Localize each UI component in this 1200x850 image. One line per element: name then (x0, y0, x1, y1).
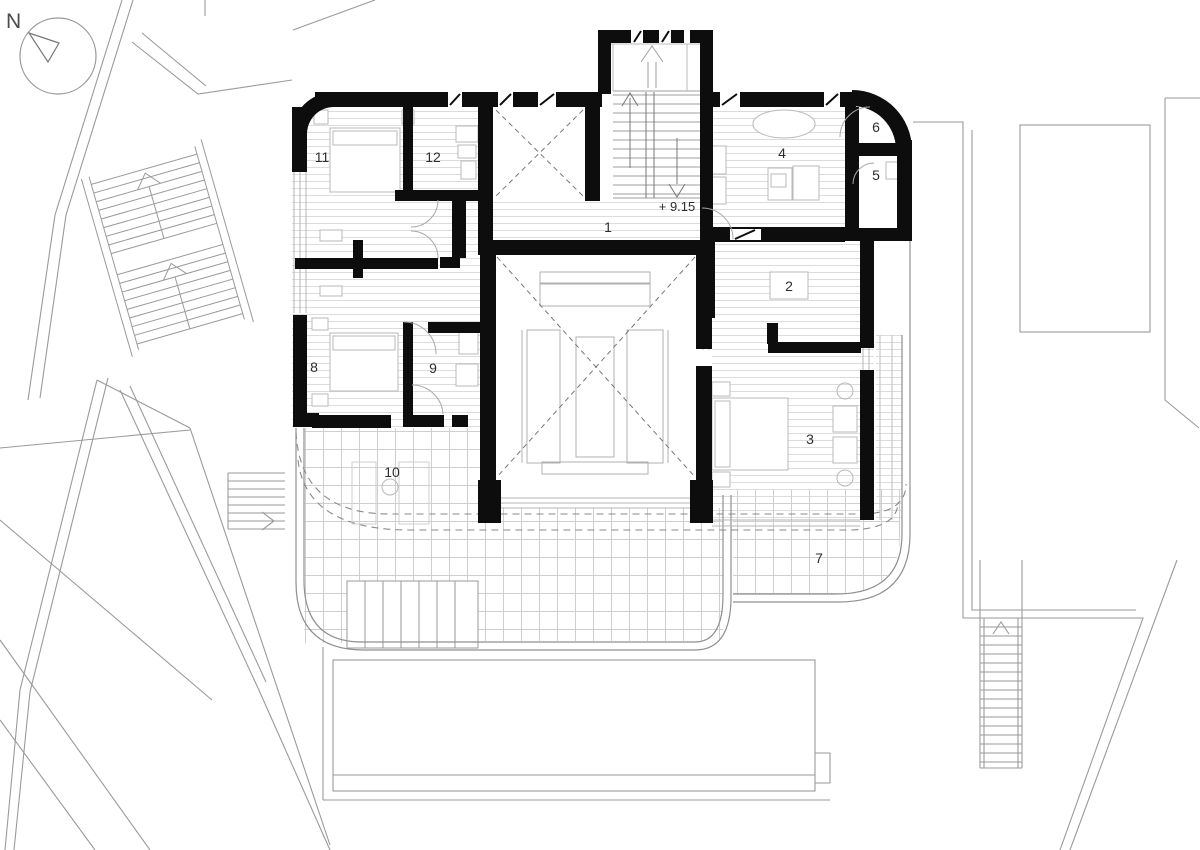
rug-room4 (753, 110, 815, 138)
lower-floor-furniture (522, 272, 668, 474)
room-label-7: 7 (815, 550, 823, 566)
room-label-10: 10 (384, 464, 400, 480)
north-label: N (6, 10, 21, 33)
room-label-6: 6 (872, 119, 880, 135)
shaft-void-x (496, 110, 583, 196)
room-label-2: 2 (785, 278, 793, 294)
exterior-stair-northwest (80, 139, 253, 356)
room-label-5: 5 (872, 167, 880, 183)
entry-bridge (600, 44, 700, 91)
room-label-11: 11 (315, 149, 330, 165)
terrace-south-tiles (480, 508, 723, 641)
floor-plan-canvas: N (0, 0, 1200, 850)
room-label-3: 3 (806, 431, 814, 447)
room-label-12: 12 (425, 149, 441, 165)
room-label-1: 1 (604, 219, 612, 235)
terrace-steps (347, 581, 478, 648)
room-label-4: 4 (778, 145, 786, 161)
floor-plan-drawing: N (0, 0, 1200, 850)
room-label-8: 8 (310, 359, 318, 375)
level-annotation: + 9.15 (659, 199, 696, 214)
room-label-9: 9 (429, 360, 437, 376)
north-arrow-circle (20, 18, 96, 94)
terrace-7-tiles (733, 490, 900, 594)
north-arrow (20, 18, 96, 94)
north-arrow-needle (29, 33, 59, 62)
main-stair (613, 91, 700, 198)
entry-arrow (641, 46, 663, 88)
